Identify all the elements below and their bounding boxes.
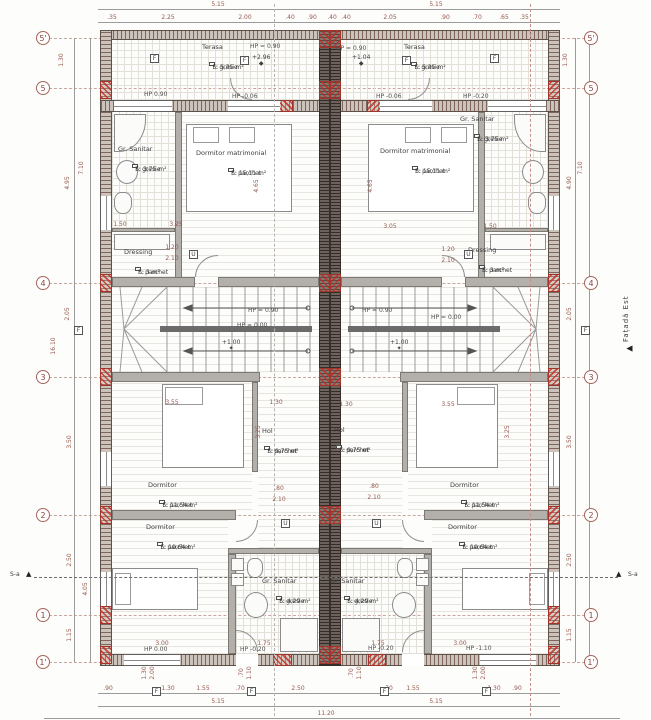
dim-text: 16.10 (51, 337, 57, 354)
dim-text: 3.00 (453, 641, 466, 647)
section-label-right: S-a (628, 571, 638, 578)
room-name: Dormitor (450, 482, 479, 489)
window-tag: F (581, 326, 590, 335)
grid-bubble: 3 (584, 370, 598, 384)
room-area: S: 15,11 m² (231, 170, 266, 178)
dim-text: .70 (239, 668, 245, 678)
dim-text: .40 (341, 15, 351, 21)
dim-text: 4.05 (83, 582, 89, 595)
dim-text: 4.65 (368, 179, 374, 192)
dim-text: .40 (327, 15, 337, 21)
hp-label: HP = 0.90 (248, 308, 278, 314)
dim-text: 3.55 (441, 402, 454, 408)
room-label: HolF: parchetS: 9,75 m² (334, 427, 345, 453)
grid-bubble: 1 (36, 608, 50, 622)
floor-plan-canvas: Fațadă Est ▲ S-a ▲ ▲ S-a 5.155.15.352.25… (0, 0, 651, 720)
grid-bubble: 5 (584, 81, 598, 95)
window-tag: F (247, 687, 256, 696)
level-symbol-icon: ✦ (222, 346, 240, 352)
dim-text: 5.15 (429, 2, 442, 8)
room-info-box: F: parchetS: 11,54 m² (159, 500, 165, 504)
room-info-box: F: parchetS: 9,75 m² (264, 446, 270, 450)
window-tag: F (490, 54, 499, 63)
dim-text: 1.50 (113, 222, 126, 228)
dim-text: 7.10 (578, 161, 584, 174)
room-name: Dormitor (148, 482, 177, 489)
dim-text: 11.20 (317, 711, 334, 717)
dim-text: 1.15 (567, 628, 573, 641)
room-name: Dormitor (146, 524, 175, 531)
window-tag: F (482, 687, 491, 696)
room-name: Dressing (124, 249, 152, 256)
grid-bubble: 1 (584, 608, 598, 622)
room-area: S: 15,11 m² (415, 168, 450, 176)
dim-text: 5.15 (211, 2, 224, 8)
hp-label: HP -0.20 (463, 94, 489, 100)
hp-label: HP = 0.00 (237, 323, 267, 329)
room-area: S: 10,64 m² (160, 544, 195, 552)
level-mark: +1.00✦ (390, 340, 408, 352)
room-label: DormitorF: parchetS: 11,54 m² (148, 482, 177, 508)
dim-text: 1.55 (196, 686, 209, 692)
room-info-box: F: parchetS: 3 m² (135, 267, 141, 271)
room-label: DormitorF: parchetS: 10,64 m² (146, 524, 175, 550)
dim-text: 2.10 (165, 256, 178, 262)
door-tag: U (281, 519, 290, 528)
hp-label: HP = 0.00 (431, 315, 461, 321)
window-tag: F (380, 687, 389, 696)
grid-bubble: 4 (584, 276, 598, 290)
level-mark: +1.04◆ (352, 55, 370, 67)
level-symbol-icon: ◆ (252, 61, 270, 67)
room-label: HolF: parchetS: 9,75 m² (262, 428, 273, 454)
dim-text: .70 (472, 15, 482, 21)
hp-label: HP 0.90 (144, 92, 167, 98)
hp-label: HP -0.06 (376, 94, 402, 100)
facade-label: Fațadă Est (622, 272, 630, 342)
room-info-box: F: parchetS: 9,75 m² (336, 445, 342, 449)
dim-text: 2.00 (150, 666, 156, 679)
dim-text: 3.50 (67, 435, 73, 448)
dim-text: .35 (107, 15, 117, 21)
hp-label: HP = 0.90 (336, 46, 366, 52)
room-label: Gr. SanitarF: gresieS: 3,75 m² (118, 146, 152, 172)
dim-text: .90 (512, 686, 522, 692)
dim-text: 4.90 (567, 176, 573, 189)
room-name: Dormitor (448, 524, 477, 531)
grid-bubble: 3 (36, 370, 50, 384)
dim-text: 1.50 (483, 224, 496, 230)
room-area: S: 4,29 m² (279, 598, 310, 606)
dim-text: .80 (274, 486, 284, 492)
room-name: Hol (334, 427, 345, 434)
room-label: Gr. SanitarF: gresieS: 4,29 m² (262, 578, 296, 604)
hp-label: HP -1.10 (466, 646, 492, 652)
dim-text: 2.05 (567, 307, 573, 320)
dim-text: 2.10 (272, 497, 285, 503)
dim-text: 2.00 (481, 666, 487, 679)
room-info-box: F: parchetS: 3 m² (479, 265, 485, 269)
dim-text: 1.10 (247, 666, 253, 679)
dim-text: .90 (440, 15, 450, 21)
room-area: S: 11,54 m² (162, 502, 197, 510)
dim-text: 1.20 (441, 247, 454, 253)
facade-arrow-icon: ▲ (625, 345, 634, 351)
room-label: TerasaF: gresieS: 5,35 m² (202, 44, 223, 70)
room-name: Hol (262, 428, 273, 435)
room-area: S: 4,29 m² (347, 598, 378, 606)
grid-bubble: 1' (36, 655, 50, 669)
section-label-left: S-a (10, 571, 20, 578)
dim-text: 5.15 (429, 699, 442, 705)
room-info-box: F: gresieS: 3,75 m² (132, 164, 138, 168)
room-info-box: F: parchetS: 10,64 m² (459, 542, 465, 546)
section-arrow-icon: ▲ (616, 570, 621, 578)
dim-text: .70 (349, 668, 355, 678)
window-tag: F (152, 687, 161, 696)
room-info-box: F: parchetS: 11,54 m² (461, 500, 467, 504)
dim-text: 1.30 (142, 666, 148, 679)
dim-text: 2.50 (567, 553, 573, 566)
level-mark: +1.00✦ (222, 340, 240, 352)
dim-text: 1.30 (269, 400, 282, 406)
room-label: DormitorF: parchetS: 11,54 m² (450, 482, 479, 508)
hp-label: HP -0.06 (232, 94, 258, 100)
room-info-box: F: parchetS: 10,64 m² (157, 542, 163, 546)
dim-text: 1.55 (406, 686, 419, 692)
dim-text: 2.50 (67, 553, 73, 566)
dim-text: .90 (307, 15, 317, 21)
grid-bubble: 2 (584, 508, 598, 522)
grid-bubble: 1' (584, 655, 598, 669)
dim-text: .90 (103, 686, 113, 692)
dim-text: 2.10 (441, 258, 454, 264)
level-symbol-icon: ◆ (352, 61, 370, 67)
hp-label: HP = 0.90 (250, 44, 280, 50)
dim-text: 2.10 (367, 495, 380, 501)
dim-text: 1.30 (59, 53, 65, 66)
dim-text: 1.30 (563, 53, 569, 66)
dim-text: 3.25 (169, 222, 182, 228)
hp-label: HP -0.20 (240, 647, 266, 653)
dim-text: 1.15 (67, 628, 73, 641)
room-info-box: F: gresieS: 4,29 m² (344, 596, 350, 600)
dim-text: 5.15 (211, 699, 224, 705)
dim-text: 3.50 (567, 435, 573, 448)
window-tag: F (240, 56, 249, 65)
dim-text: 3.05 (383, 224, 396, 230)
room-label: Gr. SanitarF: gresieS: 4,29 m² (330, 578, 364, 604)
hp-label: HP = 0.90 (362, 308, 392, 314)
dim-text: 2.25 (161, 15, 174, 21)
grid-bubble: 4 (36, 276, 50, 290)
dim-text: 1.30 (161, 686, 174, 692)
room-name: Gr. Sanitar (262, 578, 296, 585)
dim-text: 1.20 (165, 245, 178, 251)
grid-bubble: 5' (584, 31, 598, 45)
dim-text: 2.05 (65, 307, 71, 320)
room-info-box: F: parchetS: 15,11 m² (412, 166, 418, 170)
dim-text: 4.95 (65, 176, 71, 189)
window-tag: F (402, 56, 411, 65)
dim-text: 1.30 (339, 402, 352, 408)
hp-label: HP 0.00 (144, 647, 167, 653)
dim-text: 2.05 (383, 15, 396, 21)
dim-text: .40 (285, 15, 295, 21)
window-tag: F (150, 54, 159, 63)
dim-text: 2.50 (291, 686, 304, 692)
room-area: S: 5,35 m² (414, 64, 445, 72)
room-label: Dormitor matrimonialF: parchetS: 15,11 m… (196, 150, 266, 176)
room-area: S: 5,35 m² (212, 64, 243, 72)
door-tag: U (189, 250, 198, 259)
room-name: Terasa (404, 44, 425, 51)
door-tag: U (372, 519, 381, 528)
door-tag: U (464, 250, 473, 259)
room-info-box: F: gresieS: 3,75 m² (474, 134, 480, 138)
dim-text: 4.65 (254, 179, 260, 192)
room-info-box: F: gresieS: 5,35 m² (209, 62, 215, 66)
room-area: S: 3 m² (138, 269, 160, 277)
grid-bubble: 5 (36, 81, 50, 95)
dim-text: .80 (369, 484, 379, 490)
room-area: S: 3,75 m² (477, 136, 508, 144)
dim-text: 2.00 (238, 15, 251, 21)
level-symbol-icon: ✦ (390, 346, 408, 352)
room-info-box: F: gresieS: 5,35 m² (411, 62, 417, 66)
room-area: S: 3,75 m² (135, 166, 166, 174)
room-name: Gr. Sanitar (330, 578, 364, 585)
dim-text: 3.25 (505, 425, 511, 438)
dim-text: .65 (499, 15, 509, 21)
level-mark: +2.96◆ (252, 55, 270, 67)
grid-bubble: 2 (36, 508, 50, 522)
room-label: Gr. SanitarF: gresieS: 3,75 m² (460, 116, 494, 142)
room-info-box: F: parchetS: 15,11 m² (228, 168, 234, 172)
window-tag: F (74, 326, 83, 335)
room-label: DormitorF: parchetS: 10,64 m² (448, 524, 477, 550)
hp-label: HP -0.20 (368, 646, 394, 652)
room-label: DressingF: parchetS: 3 m² (124, 249, 152, 275)
dim-text: .70 (235, 686, 245, 692)
room-info-box: F: gresieS: 4,29 m² (276, 596, 282, 600)
dim-text: 1.10 (357, 666, 363, 679)
dim-text: 3.55 (165, 400, 178, 406)
room-area: S: 11,54 m² (464, 502, 499, 510)
room-area: S: 9,75 m² (267, 448, 298, 456)
dim-text: 7.10 (79, 161, 85, 174)
dim-text: 1.30 (473, 666, 479, 679)
room-name: Gr. Sanitar (118, 146, 152, 153)
room-name: Gr. Sanitar (460, 116, 494, 123)
room-area: S: 9,75 m² (339, 447, 370, 455)
room-area: S: 3 m² (482, 267, 504, 275)
room-name: Terasa (202, 44, 223, 51)
annotation-overlay: 5.155.15.352.252.00.40.90.40.402.05.90.7… (0, 0, 651, 720)
section-arrow-icon: ▲ (26, 570, 31, 578)
dim-text: .35 (519, 15, 529, 21)
grid-bubble: 5' (36, 31, 50, 45)
room-area: S: 10,64 m² (462, 544, 497, 552)
room-name: Dormitor matrimonial (196, 150, 266, 157)
room-label: Dormitor matrimonialF: parchetS: 15,11 m… (380, 148, 450, 174)
room-name: Dormitor matrimonial (380, 148, 450, 155)
